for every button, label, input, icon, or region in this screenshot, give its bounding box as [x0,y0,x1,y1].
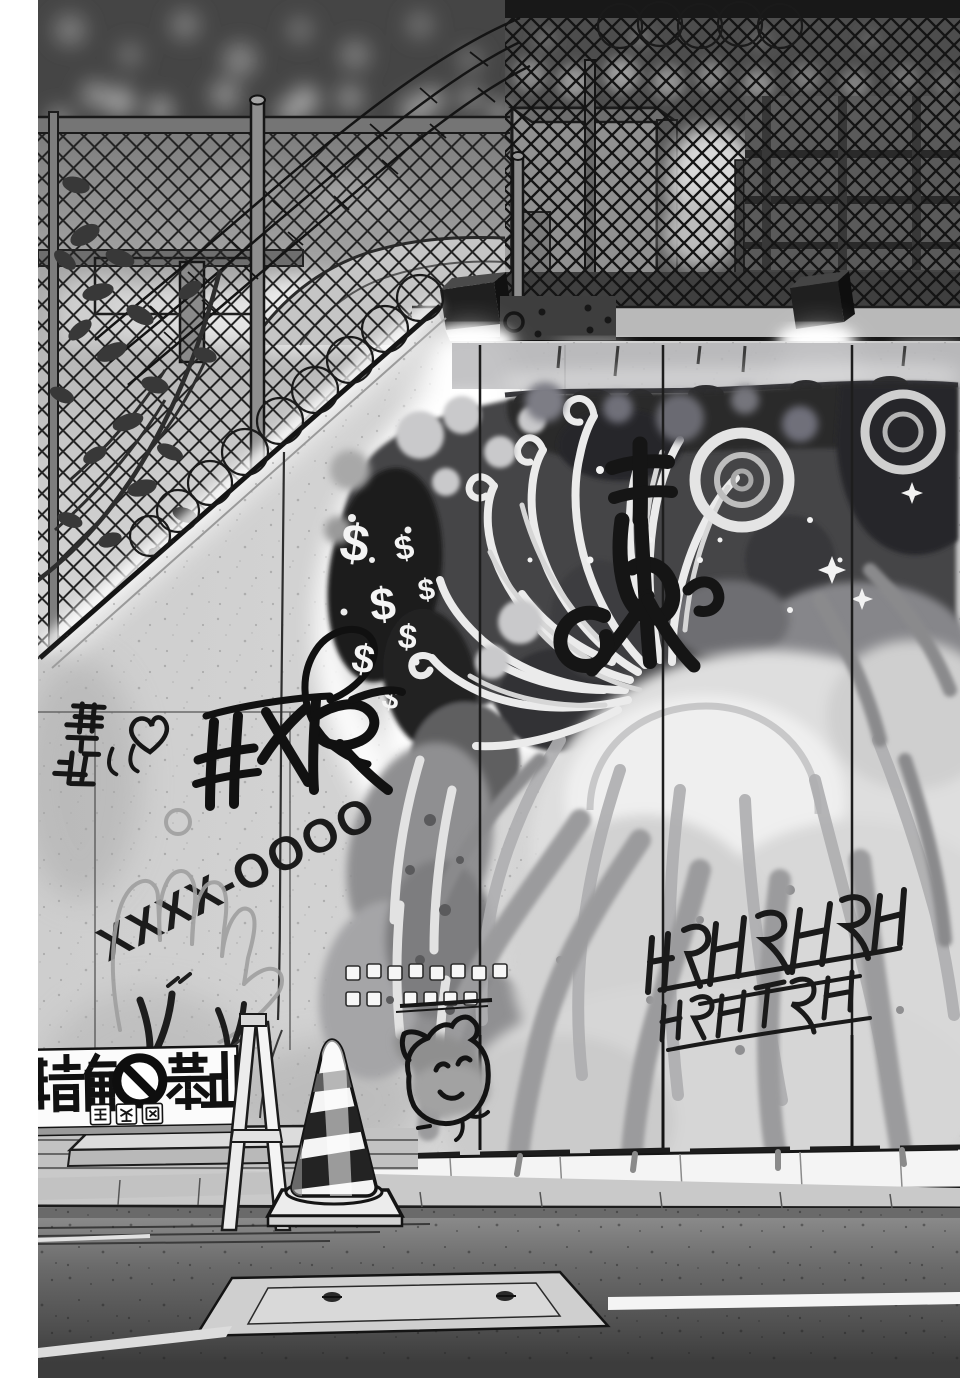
svg-text:$: $ [367,577,398,631]
svg-text:$: $ [396,617,418,657]
